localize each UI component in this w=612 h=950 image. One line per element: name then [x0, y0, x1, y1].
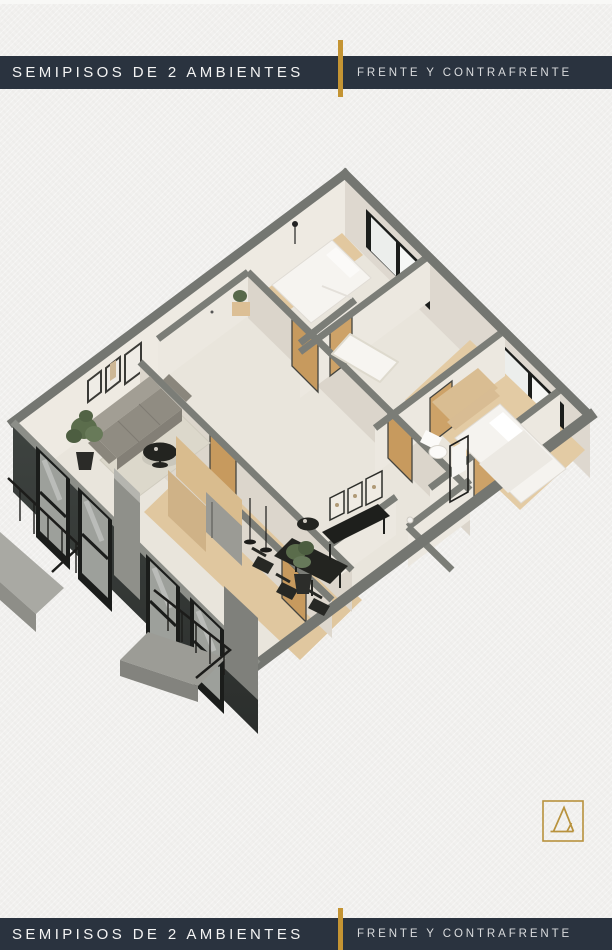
- gold-divider-top: [338, 40, 343, 97]
- banner-subtitle: FRENTE Y CONTRAFRENTE: [357, 67, 572, 79]
- banner-title: SEMIPISOS DE 2 AMBIENTES: [12, 64, 304, 81]
- brand-logo: [540, 798, 586, 844]
- gold-divider-bottom: [338, 908, 343, 950]
- brand-logo-monogram: [551, 808, 574, 832]
- flyer-page: SEMIPISOS DE 2 AMBIENTES FRENTE Y CONTRA…: [0, 0, 612, 950]
- bottom-banner: SEMIPISOS DE 2 AMBIENTES FRENTE Y CONTRA…: [0, 918, 612, 950]
- banner-title: SEMIPISOS DE 2 AMBIENTES: [12, 926, 304, 943]
- floor-plan-rendering: [0, 0, 612, 950]
- banner-subtitle: FRENTE Y CONTRAFRENTE: [357, 928, 572, 940]
- top-banner: SEMIPISOS DE 2 AMBIENTES FRENTE Y CONTRA…: [0, 56, 612, 89]
